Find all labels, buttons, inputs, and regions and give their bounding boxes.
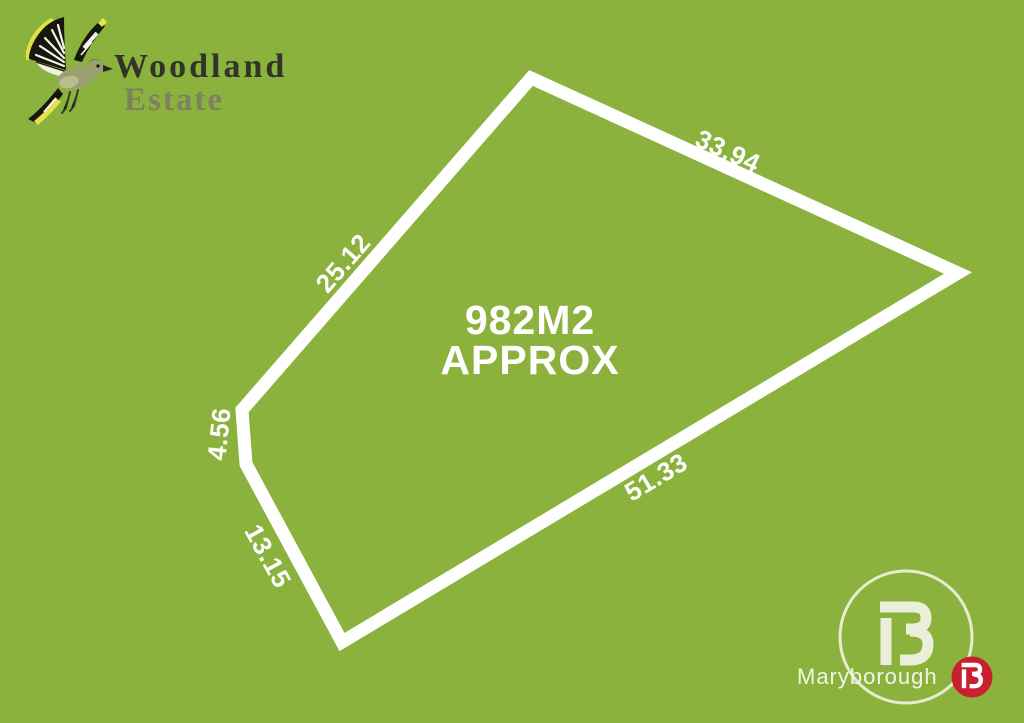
lot-area-label: 982M2 APPROX — [440, 300, 619, 380]
agency-monogram-icon — [830, 560, 1024, 723]
brand-subtitle: Estate — [124, 84, 224, 117]
brand-logo: Woodland Estate — [0, 0, 320, 140]
lot-flyer: 33.94 25.12 4.56 13.15 51.33 982M2 APPRO… — [0, 0, 1024, 723]
lot-area-approx: APPROX — [440, 340, 619, 380]
bird-icon — [24, 12, 116, 126]
brand-name: Woodland — [114, 50, 287, 84]
dimension-label-left: 4.56 — [203, 406, 234, 461]
agency-mark: Maryborough — [830, 560, 1024, 723]
agency-location: Maryborough — [797, 664, 938, 690]
agency-badge — [952, 657, 993, 698]
lot-area-value: 982M2 — [440, 300, 619, 340]
